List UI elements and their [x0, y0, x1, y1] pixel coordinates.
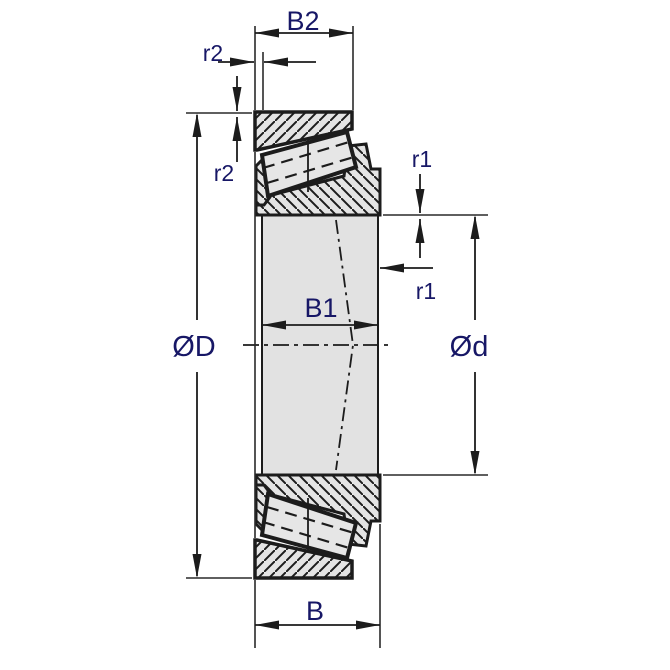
arrowhead-d-up [471, 215, 480, 239]
arrowhead-od-down [193, 554, 202, 578]
arrowhead-r2-up [233, 117, 242, 141]
arrowhead-r1-down [416, 189, 425, 213]
arrowhead-od-up [193, 113, 202, 137]
arrowhead-b-left [255, 621, 279, 630]
dim-label-r2-vertical: r2 [214, 160, 234, 186]
dim-label-b: B [306, 596, 324, 626]
arrowhead-r1-up [416, 219, 425, 243]
dim-label-outer-diameter: ØD [172, 331, 216, 363]
arrowhead-r2-left-pointing [264, 58, 288, 67]
arrowhead-d-down [471, 451, 480, 475]
arrowhead-r1-left-pointing [380, 264, 404, 273]
bearing-dimension-diagram: B2 r2 r2 r1 r1 B1 ØD Ød B [0, 0, 670, 670]
dim-label-bore-diameter: Ød [450, 331, 489, 363]
arrowhead-b-right [356, 621, 380, 630]
dim-label-b2: B2 [286, 6, 319, 36]
arrowhead-b2-left [255, 29, 279, 38]
arrowhead-r2-down [233, 87, 242, 111]
dim-label-r2-horizontal: r2 [203, 40, 223, 66]
arrowhead-r2-right-pointing [230, 58, 254, 67]
dim-label-b1: B1 [304, 293, 337, 323]
diagram-canvas: B2 r2 r2 r1 r1 B1 ØD Ød B [0, 0, 670, 670]
dim-label-r1-horizontal: r1 [416, 278, 436, 304]
dim-label-r1-vertical: r1 [412, 146, 432, 172]
arrowhead-b2-right [329, 29, 353, 38]
